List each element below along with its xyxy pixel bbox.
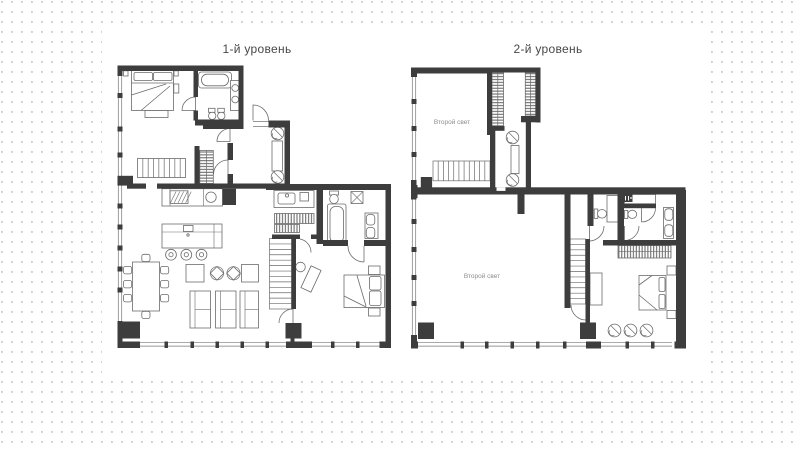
- svg-text:Второй свет: Второй свет: [434, 118, 470, 126]
- svg-text:2-й уровень: 2-й уровень: [513, 42, 582, 56]
- svg-text:1-й уровень: 1-й уровень: [222, 42, 291, 56]
- svg-text:Второй свет: Второй свет: [464, 272, 500, 280]
